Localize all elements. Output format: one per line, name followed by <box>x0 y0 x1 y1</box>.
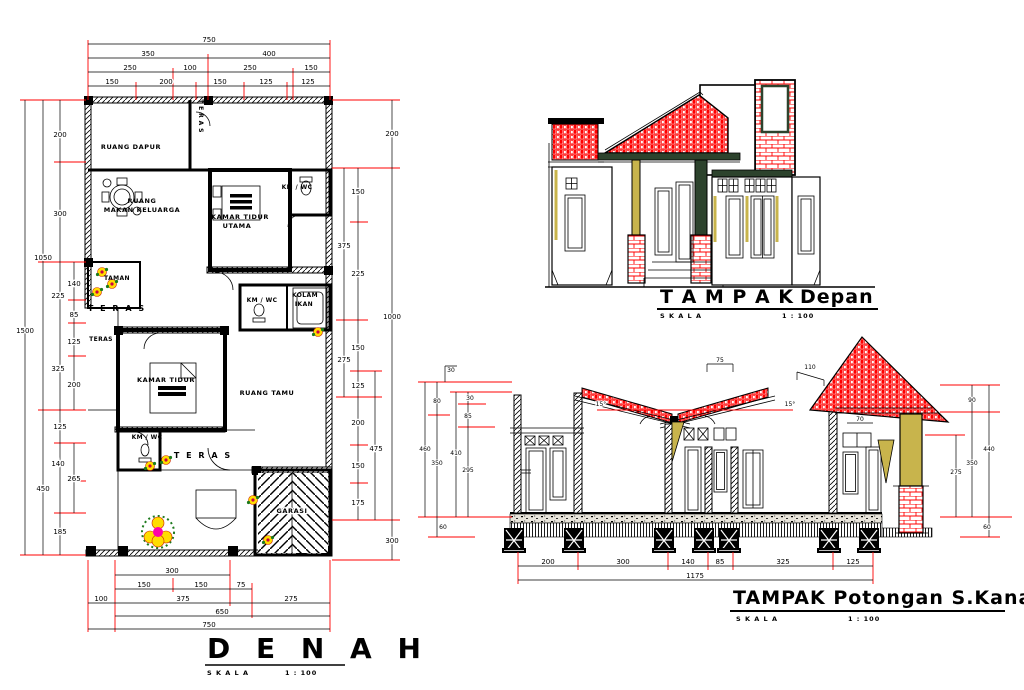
dim-label: 750 <box>202 36 215 44</box>
elevation-title-main: T A M P A K <box>660 286 794 308</box>
dim-label: 15° <box>785 401 796 408</box>
dim-label: 350 <box>141 50 154 58</box>
dim-label: 250 <box>243 64 256 72</box>
dim-label: 450 <box>36 485 49 493</box>
dim-label: 150 <box>304 64 317 72</box>
valley-roof <box>575 388 793 432</box>
dim-label: 250 <box>123 64 136 72</box>
dim-label: 1050 <box>34 254 52 262</box>
dim-label: 185 <box>53 528 66 536</box>
room-label-kolam-1: KOLAM <box>292 292 318 299</box>
dim-label: 375 <box>337 242 350 250</box>
dim-label: 110 <box>804 364 816 371</box>
dim-label: 15° <box>596 401 607 408</box>
dim-label: 225 <box>51 292 64 300</box>
room-label-kamar-tidur: KAMAR TIDUR <box>137 376 195 384</box>
room-label-kmwc-top: KM / WC <box>282 184 313 191</box>
elevation-scale-label: S K A L A <box>660 312 702 320</box>
room-label-taman: TAMAN <box>104 275 130 282</box>
room-label-teras-top: T E R A S <box>197 99 204 133</box>
dim-label: 300 <box>53 210 66 218</box>
section-dims-right: 90 440 350 275 60 <box>925 385 1012 537</box>
dim-label: 410 <box>450 450 462 457</box>
elevation-title-sub: Depan <box>800 286 874 308</box>
dim-label: 140 <box>681 558 694 566</box>
dim-label: 200 <box>53 131 66 139</box>
dim-label: 475 <box>369 445 382 453</box>
room-label-kmwc-bottom: KM / WC <box>132 434 163 441</box>
right-wing <box>712 177 820 285</box>
dim-label: 150 <box>351 344 364 352</box>
plan-scale-value: 1 : 100 <box>285 669 317 677</box>
dim-label: 200 <box>159 78 172 86</box>
cad-sheet: RUANG DAPUR T E R A S RUANG MAKAN KELUAR… <box>0 0 1024 690</box>
drawing-canvas: RUANG DAPUR T E R A S RUANG MAKAN KELUAR… <box>0 0 1024 690</box>
room-label-kmwc-mid: KM / WC <box>247 297 278 304</box>
dim-label: 750 <box>202 621 215 629</box>
dim-label: 300 <box>385 537 398 545</box>
dim-label: 275 <box>284 595 297 603</box>
room-label-kolam-2: IKAN <box>295 301 313 308</box>
dim-label: 75 <box>716 357 724 364</box>
dim-label: 150 <box>137 581 150 589</box>
dim-label: 350 <box>966 460 978 467</box>
dim-label: 225 <box>351 270 364 278</box>
room-label-ruang-tamu: RUANG TAMU <box>240 389 295 397</box>
dim-label: 150 <box>351 462 364 470</box>
walkway <box>196 490 236 529</box>
section-title: TAMPAK Potongan S.Kanan <box>733 587 1024 609</box>
room-label-makan-2: MAKAN KELUARGA <box>104 206 181 214</box>
dim-label: 1500 <box>16 327 34 335</box>
dim-label: 650 <box>215 608 228 616</box>
wall <box>88 100 210 170</box>
dim-label: 125 <box>67 338 80 346</box>
dim-label: 30 <box>447 367 455 374</box>
room-label-makan-1: RUANG <box>128 197 157 205</box>
dim-label: 125 <box>846 558 859 566</box>
left-wing <box>548 118 612 287</box>
room-label-garasi: GARASI <box>276 507 307 515</box>
plan-dims-left: 200 300 1050 140 225 85 125 325 200 125 … <box>16 100 86 555</box>
entry-columns <box>628 160 723 287</box>
dim-label: 400 <box>262 50 275 58</box>
dim-label: 140 <box>51 460 64 468</box>
dim-label: 80 <box>433 398 441 405</box>
dim-label: 140 <box>67 280 80 288</box>
plan-title: D E N A H <box>207 632 429 665</box>
dim-label: 30 <box>466 395 474 402</box>
porch-column <box>900 414 922 486</box>
plan-dims-bottom: 300 150 150 75 100 375 275 650 750 <box>88 560 330 632</box>
dim-label: 100 <box>183 64 196 72</box>
dim-label: 125 <box>301 78 314 86</box>
bed-icon <box>150 363 196 413</box>
floor-plan: RUANG DAPUR T E R A S RUANG MAKAN KELUAR… <box>16 36 429 677</box>
dim-label: 85 <box>716 558 725 566</box>
room-label-teras-mid: T E R A S <box>174 451 232 460</box>
dim-label: 100 <box>94 595 107 603</box>
dim-label: 265 <box>67 475 80 483</box>
dim-label: 300 <box>616 558 629 566</box>
dim-label: 275 <box>950 469 962 476</box>
porch-column-pedestal <box>899 486 923 533</box>
dim-label: 200 <box>385 130 398 138</box>
dim-label: 325 <box>51 365 64 373</box>
room-label-dapur: RUANG DAPUR <box>101 143 161 151</box>
section-dims-bottom: 200 300 140 85 325 125 1175 <box>518 552 873 584</box>
section-scale-label: S K A L A <box>736 615 778 623</box>
plan-dims-right: 200 150 375 225 150 275 125 200 475 150 … <box>332 100 401 560</box>
dim-label: 375 <box>176 595 189 603</box>
dim-label: 90 <box>968 397 976 404</box>
dim-label: 75 <box>237 581 246 589</box>
dim-label: 175 <box>351 499 364 507</box>
dim-label: 350 <box>431 460 443 467</box>
dim-label: 70 <box>856 416 864 423</box>
section-left-room <box>510 393 584 513</box>
large-flower-icon <box>142 516 174 548</box>
dim-label: 150 <box>194 581 207 589</box>
elevation-scale-value: 1 : 100 <box>782 312 814 320</box>
room-label-kamar-utama-2: UTAMA <box>223 222 252 230</box>
dim-label: 460 <box>419 446 431 453</box>
right-roof <box>810 337 948 422</box>
dim-label: 275 <box>337 356 350 364</box>
dim-label: 125 <box>351 382 364 390</box>
dim-label: 150 <box>213 78 226 86</box>
section-middle-rooms <box>665 422 763 513</box>
dim-label: 440 <box>983 446 995 453</box>
ground-fill <box>510 514 882 523</box>
dim-label: 200 <box>67 381 80 389</box>
section-scale-value: 1 : 100 <box>848 615 880 623</box>
dim-label: 60 <box>439 524 447 531</box>
dim-label: 300 <box>165 567 178 575</box>
room-label-teras-left: T E R A S <box>88 304 146 313</box>
dim-label: 295 <box>462 467 474 474</box>
dim-label: 200 <box>541 558 554 566</box>
room-label-teras-small: TERAS <box>89 336 113 343</box>
dim-label: 85 <box>464 413 472 420</box>
dim-label: 150 <box>105 78 118 86</box>
section-dims-left: 30 80 460 410 350 30 85 295 60 <box>418 366 512 537</box>
plan-scale-label: S K A L A <box>207 669 249 677</box>
dim-label: 125 <box>259 78 272 86</box>
section-elevation: 75 110 15° 15° 70 30 80 460 410 350 30 8… <box>418 337 1024 623</box>
dim-label: 150 <box>351 188 364 196</box>
front-elevation: T A M P A K Depan S K A L A 1 : 100 <box>545 80 878 320</box>
dim-label: 1175 <box>686 572 704 580</box>
room-label-kamar-utama-1: KAMAR TIDUR <box>211 213 269 221</box>
plan-dims-top: 750 350 400 250 100 250 150 150 200 150 … <box>88 36 330 100</box>
dim-label: 125 <box>53 423 66 431</box>
dim-label: 85 <box>70 311 79 319</box>
dim-label: 1000 <box>383 313 401 321</box>
dim-label: 60 <box>983 524 991 531</box>
dim-label: 325 <box>776 558 789 566</box>
dim-label: 200 <box>351 419 364 427</box>
